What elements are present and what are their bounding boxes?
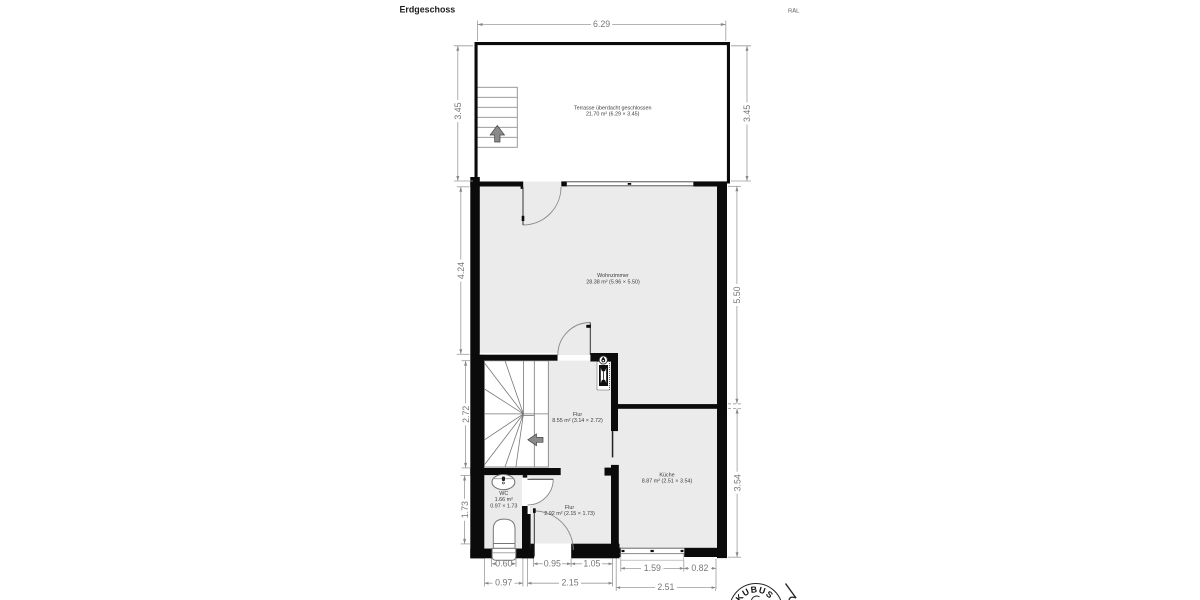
svg-text:21.70 m² (6.29 × 3.45): 21.70 m² (6.29 × 3.45) (586, 112, 640, 118)
svg-text:0.97: 0.97 (495, 578, 512, 588)
svg-text:1.05: 1.05 (583, 558, 600, 568)
svg-text:RÄL: RÄL (788, 8, 800, 15)
svg-text:2.72: 2.72 (461, 406, 471, 423)
svg-text:1.66 m²: 1.66 m² (495, 497, 513, 503)
svg-text:8.87 m² (2.51 × 3.54): 8.87 m² (2.51 × 3.54) (642, 479, 693, 485)
svg-text:Erdgeschoss: Erdgeschoss (400, 5, 456, 15)
svg-text:2.15: 2.15 (562, 578, 579, 588)
svg-text:8.55 m² (3.14 × 2.72): 8.55 m² (3.14 × 2.72) (552, 418, 603, 424)
svg-text:Wohnzimmer: Wohnzimmer (597, 273, 629, 279)
svg-text:6.29: 6.29 (593, 19, 610, 29)
svg-text:B: B (750, 584, 757, 595)
svg-text:0.97 × 1.73: 0.97 × 1.73 (490, 503, 517, 509)
svg-text:28.38 m² (5.96 × 5.50): 28.38 m² (5.96 × 5.50) (586, 279, 640, 285)
svg-text:2.92 m² (2.15 × 1.73): 2.92 m² (2.15 × 1.73) (544, 511, 595, 517)
svg-text:3.54: 3.54 (732, 474, 742, 491)
svg-text:1.73: 1.73 (460, 501, 470, 518)
svg-text:0.95: 0.95 (544, 558, 561, 568)
svg-text:Flur: Flur (565, 505, 574, 511)
svg-text:5.50: 5.50 (732, 286, 742, 303)
svg-text:Küche: Küche (659, 472, 674, 478)
svg-text:1.59: 1.59 (644, 563, 661, 573)
svg-text:0.60: 0.60 (495, 558, 512, 568)
svg-text:Terrasse überdacht geschlossen: Terrasse überdacht geschlossen (574, 106, 652, 112)
svg-text:Flur: Flur (573, 412, 582, 418)
svg-text:0.82: 0.82 (691, 563, 708, 573)
svg-text:2.51: 2.51 (657, 582, 674, 592)
svg-text:3.45: 3.45 (742, 105, 752, 122)
svg-text:3.45: 3.45 (453, 102, 463, 119)
svg-text:WC: WC (499, 491, 508, 497)
svg-text:4.24: 4.24 (456, 262, 466, 279)
